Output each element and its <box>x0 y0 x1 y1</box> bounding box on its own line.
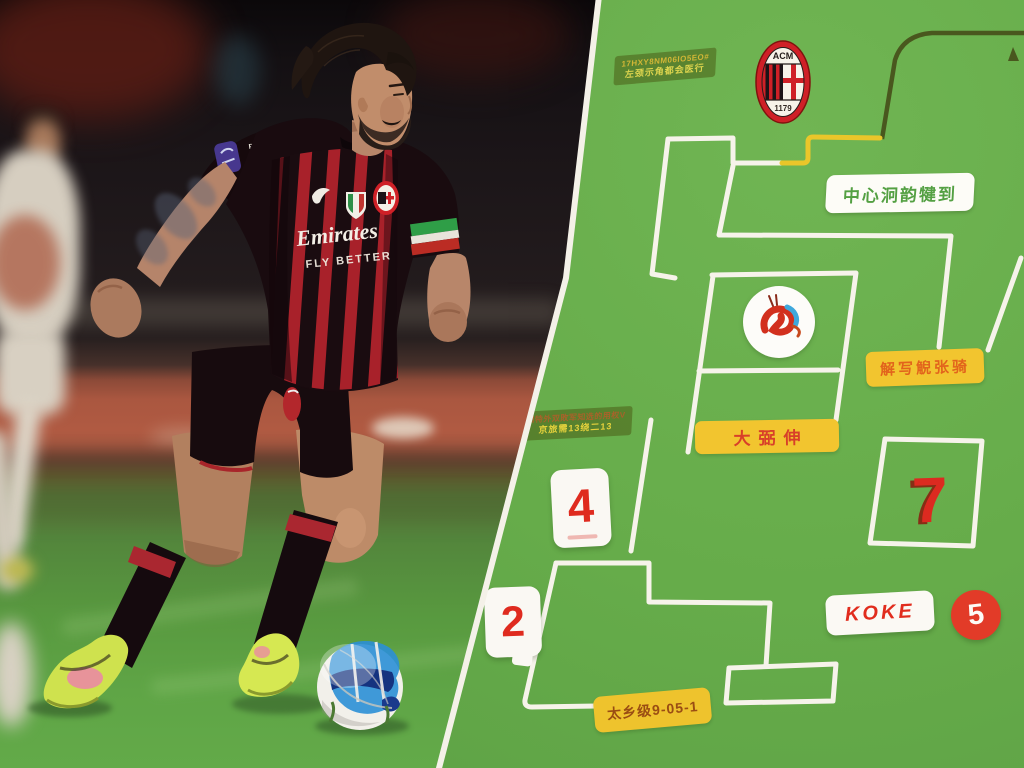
yellow-route-line <box>782 137 880 163</box>
soccer-ball <box>317 641 403 730</box>
card-4-value: 4 <box>566 477 595 533</box>
infographic-canvas: ACM 1179 17HXY8NM06IO5EO# 左颈示角都会医行 知特外双敗… <box>0 0 1024 768</box>
dark-route-line <box>882 33 1024 139</box>
koke-pill: KOKE <box>825 590 935 636</box>
player-left-arm: PUMA <box>83 133 270 344</box>
crest-initials: ACM <box>773 51 794 61</box>
crest-year: 1179 <box>774 104 792 113</box>
card-2-value: 2 <box>500 597 526 647</box>
right-fist <box>429 302 467 342</box>
koln-crest <box>742 285 816 359</box>
left-fist <box>83 272 149 345</box>
label-center-white: 中心泂韵犍到 <box>825 173 975 214</box>
eye <box>394 94 403 95</box>
number-card-2: 2 <box>484 586 542 658</box>
card-4-underline <box>567 534 597 540</box>
label-right-yellow: 解写觬张骑 <box>865 348 984 387</box>
route-arrow-icon <box>1008 47 1019 61</box>
label-middle-yellow: 大弼伸 <box>695 419 840 455</box>
player-trailing-leg <box>44 431 256 708</box>
number-outlined-7: 7 <box>882 448 977 551</box>
number-card-4: 4 <box>550 468 612 549</box>
player-right-arm <box>408 218 470 342</box>
ac-milan-crest: ACM 1179 <box>755 40 811 124</box>
chest-crest-icon <box>373 181 399 215</box>
